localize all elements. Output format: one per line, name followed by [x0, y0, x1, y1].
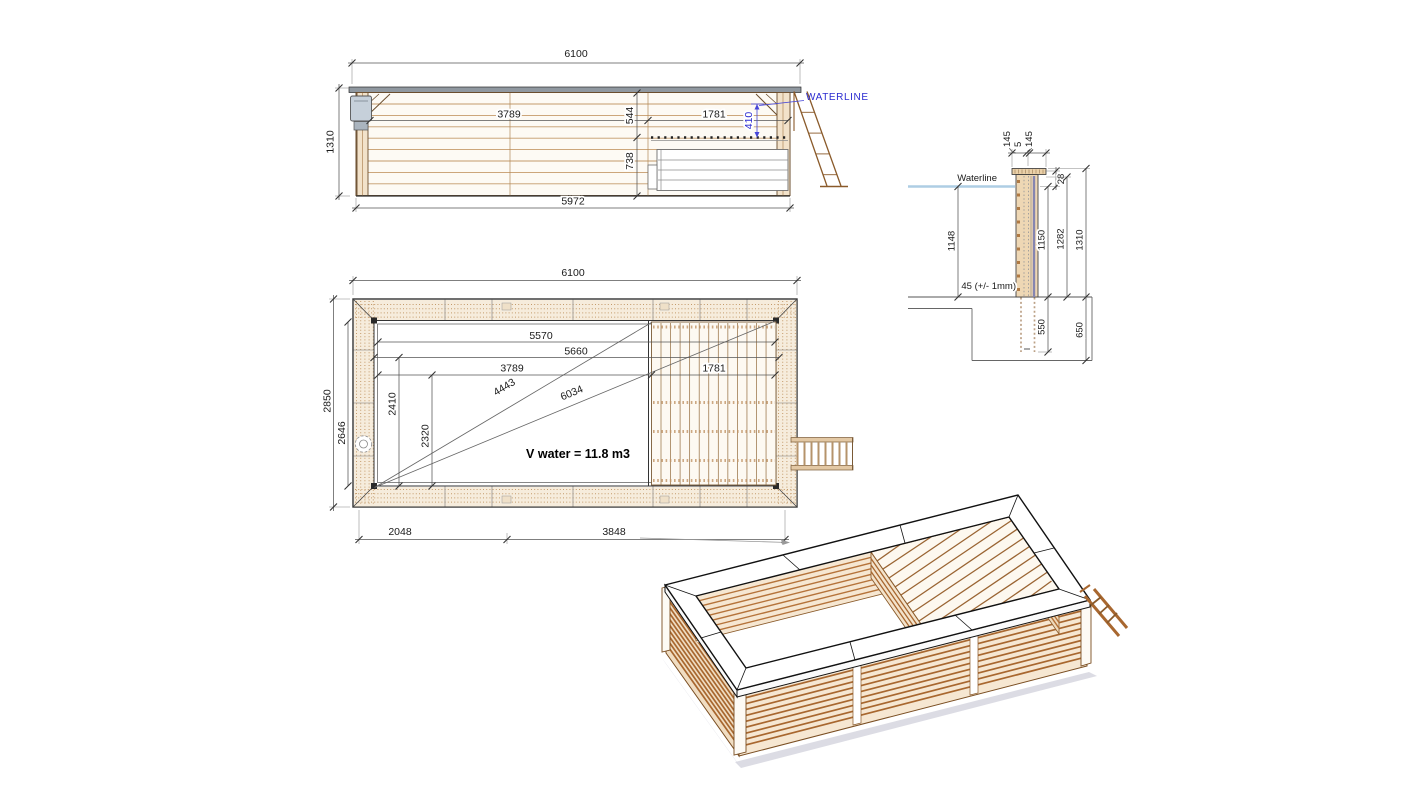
dim-elevation-overall-width: 6100	[564, 48, 588, 60]
dim-plan-inner-second: 5660	[564, 346, 588, 358]
dim-plan-bottom-right: 3848	[602, 526, 626, 538]
dim-section-cap-right: 145	[1024, 131, 1035, 147]
dim-plan-water-length: 3789	[500, 363, 524, 375]
dim-plan-overall-height: 2850	[322, 389, 334, 413]
waterline-label-section: Waterline	[957, 173, 997, 184]
dim-elevation-left-span: 3789	[497, 109, 521, 121]
front-wall-batten	[853, 659, 861, 725]
section-buried-posts	[1021, 298, 1035, 353]
elevation-coping	[349, 87, 801, 93]
dim-elevation-bottom-depth: 738	[624, 152, 636, 170]
dim-plan-deck-length: 1781	[702, 363, 726, 375]
waterline-label-elevation: WATERLINE	[806, 92, 869, 103]
isometric-3d-view	[640, 495, 1127, 768]
corner-post	[734, 688, 746, 755]
water-volume-label: V water = 11.8 m3	[526, 447, 630, 461]
dim-section-wall-total: 1310	[1075, 229, 1086, 250]
plan-ladder	[791, 438, 853, 471]
plan-skimmer	[355, 436, 371, 452]
dim-section-cap-gap: 5	[1013, 142, 1024, 147]
dim-plan-inner-height: 2646	[336, 421, 348, 445]
dim-plan-inner-width-a: 2410	[387, 392, 399, 416]
dim-plan-bottom-left: 2048	[388, 526, 412, 538]
corner-post	[1081, 603, 1091, 666]
tolerance-label: 45 (+/- 1mm)	[961, 281, 1016, 292]
blueprint-page: 6100	[0, 0, 1422, 800]
technical-drawing-canvas: 6100	[0, 0, 1422, 800]
dim-elevation-top-depth: 544	[624, 107, 636, 125]
dim-section-wall-inner: 1150	[1037, 230, 1048, 250]
side-elevation-view: 6100	[325, 48, 869, 212]
dim-section-cap-left: 145	[1002, 131, 1013, 147]
dim-elevation-base-width: 5972	[561, 196, 585, 208]
dim-section-wall-mid: 1282	[1056, 228, 1067, 249]
wall-section-detail: Waterline 145 5 145	[908, 131, 1092, 364]
dim-elevation-waterline-offset: 410	[743, 112, 755, 130]
front-wall-batten	[970, 629, 978, 695]
dim-section-water-depth: 1148	[947, 231, 958, 251]
plan-view: 6100	[322, 267, 854, 544]
dim-elevation-height: 1310	[325, 130, 337, 154]
dim-plan-overall-width: 6100	[561, 267, 585, 279]
dim-section-foundation: 650	[1075, 322, 1086, 338]
dim-plan-inner-top: 5570	[529, 330, 553, 342]
dim-plan-water-width: 2320	[420, 424, 432, 448]
dim-section-post-embed: 550	[1037, 319, 1048, 335]
view-leader-line	[640, 538, 788, 543]
dim-elevation-right-span: 1781	[702, 109, 726, 121]
elevation-ladder	[794, 92, 848, 187]
